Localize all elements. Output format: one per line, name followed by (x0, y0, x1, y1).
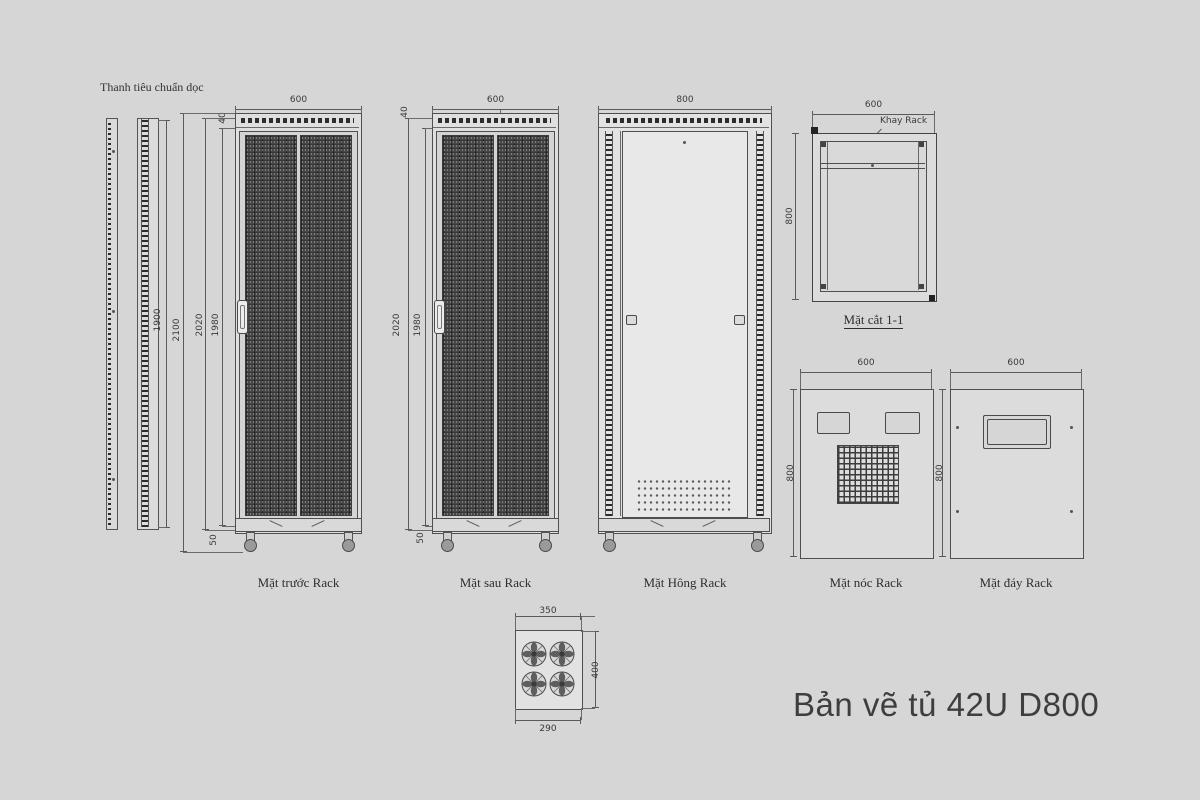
dim-line (515, 720, 581, 721)
rail-perforation (108, 121, 111, 525)
dim-line-frame (222, 128, 223, 526)
top-view: 600 800 Mặt nóc Rack (790, 358, 940, 603)
drawing-canvas: Thanh tiêu chuẩn dọc 1900 2100 2020 1980… (0, 0, 1200, 800)
caster (243, 532, 257, 552)
back-view-label: Mặt sau Rack (432, 575, 559, 591)
base-band (235, 518, 362, 532)
rail-perforation (141, 119, 149, 527)
ext-line (1081, 372, 1082, 389)
panel-screw (683, 141, 686, 144)
ext-line (158, 120, 166, 121)
bottom-view-label: Mặt đáy Rack (950, 575, 1082, 591)
side-view: 800 Mặt Hông Rack (598, 95, 772, 595)
ext-line (515, 708, 516, 720)
back-caster-dim: 50 (416, 523, 426, 553)
fan-unit-drawing (517, 632, 579, 706)
dim-line-body (408, 118, 409, 530)
front-body-dim: 2020 (195, 310, 205, 340)
back-frame-dim: 1980 (413, 310, 423, 340)
caster (341, 532, 355, 552)
roof-vent-grid (837, 445, 899, 504)
ext-line (581, 708, 595, 709)
back-cap-dim: 40 (400, 97, 410, 127)
section-width-dim: 600 (812, 100, 935, 110)
fan-height-dim: 400 (591, 655, 601, 685)
ext-line (934, 114, 935, 133)
front-view-label: Mặt trước Rack (235, 575, 362, 591)
tray-bolt (871, 164, 874, 167)
corner-post-right (756, 131, 764, 516)
corner-post-left (605, 131, 613, 516)
ext-line (931, 372, 932, 389)
bottom-width-dim: 600 (950, 358, 1082, 368)
front-frame-dim: 1980 (211, 310, 221, 340)
fan-width-dim: 350 (515, 606, 581, 616)
base-band (432, 518, 559, 532)
rail-label: Thanh tiêu chuẩn dọc (100, 80, 204, 95)
cable-entry-left (817, 412, 850, 434)
back-width-dim: 600 (432, 95, 559, 105)
base-band (598, 518, 770, 532)
ext-line (183, 552, 243, 553)
caster (750, 532, 764, 552)
fan-inner-dim: 290 (515, 724, 581, 734)
front-width-dim: 600 (235, 95, 362, 105)
ext-line (408, 530, 434, 531)
panel-latch-left (626, 315, 637, 325)
bottom-view: 600 800 Mặt đáy Rack (938, 358, 1088, 603)
dim-line-overall (183, 113, 184, 552)
dim-line (950, 372, 1082, 373)
ext-line (581, 616, 582, 630)
cap-line (433, 127, 556, 128)
top-vent-strip (438, 118, 551, 123)
bottom-depth-dim: 800 (935, 458, 945, 488)
side-depth-dim: 800 (598, 95, 772, 105)
mesh-door-right (497, 135, 549, 516)
front-view: 600 Mặt trước Rack (235, 95, 362, 595)
door-handle (434, 300, 445, 334)
caster (602, 532, 616, 552)
ext-line (581, 631, 595, 632)
mounting-rail-1 (106, 118, 118, 530)
cable-slot-inner (987, 419, 1047, 445)
corner-block (821, 142, 826, 147)
corner-block (919, 142, 924, 147)
section-marker (929, 295, 935, 301)
ext-line (158, 527, 166, 528)
ext-line (581, 616, 595, 617)
caster (440, 532, 454, 552)
corner-block (821, 284, 826, 289)
drawing-title: Bản vẽ tủ 42U D800 (793, 686, 1099, 724)
dim-line (235, 109, 362, 110)
section-marker (811, 127, 818, 134)
dim-line (598, 109, 772, 110)
section-depth-dim: 800 (785, 201, 795, 231)
screw-mark (1070, 510, 1073, 513)
dim-line (800, 372, 932, 373)
dim-line-body (205, 118, 206, 530)
bottom-vent (636, 478, 733, 514)
ext-line (408, 118, 432, 119)
section-view: 600 Khay Rack 800 Mặt cắt 1-1 (785, 100, 950, 340)
mesh-door-left (245, 135, 297, 516)
dim-line (795, 133, 796, 300)
side-view-label: Mặt Hông Rack (598, 575, 772, 591)
dim-line (812, 114, 935, 115)
screw-mark (956, 426, 959, 429)
ext-line (950, 372, 951, 389)
ext-line (205, 118, 237, 119)
back-body-dim: 2020 (392, 310, 402, 340)
top-width-dim: 600 (800, 358, 932, 368)
rail-hole (112, 310, 115, 313)
dim-line-rail (166, 120, 167, 528)
mesh-door-right (300, 135, 352, 516)
ext-line (183, 113, 237, 114)
top-depth-dim: 800 (786, 458, 796, 488)
section-view-label: Mặt cắt 1-1 (812, 312, 935, 328)
dim-line (432, 109, 559, 110)
rail-hole (112, 478, 115, 481)
top-vent-strip (241, 118, 354, 123)
fan-unit-view: 350 (503, 606, 615, 738)
door-handle (237, 300, 248, 334)
ext-line (800, 372, 801, 389)
top-view-label: Mặt nóc Rack (800, 575, 932, 591)
side-panel (622, 131, 748, 518)
ext-line (205, 530, 237, 531)
mesh-door-left (442, 135, 494, 516)
corner-block (919, 284, 924, 289)
dim-line (515, 616, 581, 617)
ext-line (581, 708, 582, 720)
cable-slot (983, 415, 1051, 449)
rail-hole (112, 150, 115, 153)
caster (538, 532, 552, 552)
cap-line (236, 127, 359, 128)
section-callout: Khay Rack (880, 116, 927, 126)
dim-line-frame (425, 128, 426, 526)
rail-length-dim: 1900 (153, 305, 163, 335)
panel-latch-right (734, 315, 745, 325)
top-vent-strip (606, 118, 762, 123)
back-view: 600 Mặt sau Rack (432, 95, 559, 595)
ext-line (515, 616, 516, 630)
screw-mark (1070, 426, 1073, 429)
front-overall-dim: 2100 (172, 315, 182, 345)
section-view-label-text: Mặt cắt 1-1 (844, 312, 904, 329)
screw-mark (956, 510, 959, 513)
cable-entry-right (885, 412, 920, 434)
cap-line (599, 127, 769, 128)
frame-line (620, 131, 621, 516)
